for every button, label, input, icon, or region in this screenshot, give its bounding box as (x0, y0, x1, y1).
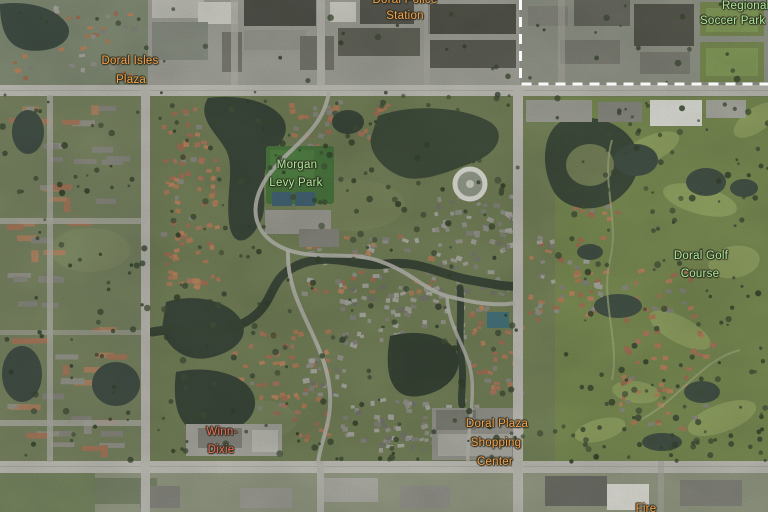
label-doral-isles-line2: Plaza (116, 74, 146, 86)
label-winn-dixie-line2: Dixie (208, 444, 235, 456)
satellite-map[interactable]: Doral Police Station Regional Soccer Par… (0, 0, 768, 512)
label-doral-police-line2: Station (386, 10, 424, 22)
label-doral-golf-line2: Course (681, 268, 720, 280)
label-bottom-partial: Fire (636, 503, 657, 512)
label-doral-isles-line1: Doral Isles (101, 55, 158, 67)
label-doral-plaza-line3: Center (477, 456, 513, 468)
label-doral-plaza-line1: Doral Plaza (466, 418, 528, 430)
label-regional-soccer-line2: Soccer Park (700, 15, 765, 27)
label-morgan-levy-line2: Levy Park (269, 177, 322, 189)
label-morgan-levy-line1: Morgan (277, 159, 318, 171)
label-doral-plaza-line2: Shopping (471, 437, 522, 449)
label-regional-soccer-line1: Regional (722, 0, 768, 12)
label-doral-golf-line1: Doral Golf (674, 250, 728, 262)
label-winn-dixie-line1: Winn- (206, 426, 237, 438)
label-doral-police-line1: Doral Police (373, 0, 438, 6)
